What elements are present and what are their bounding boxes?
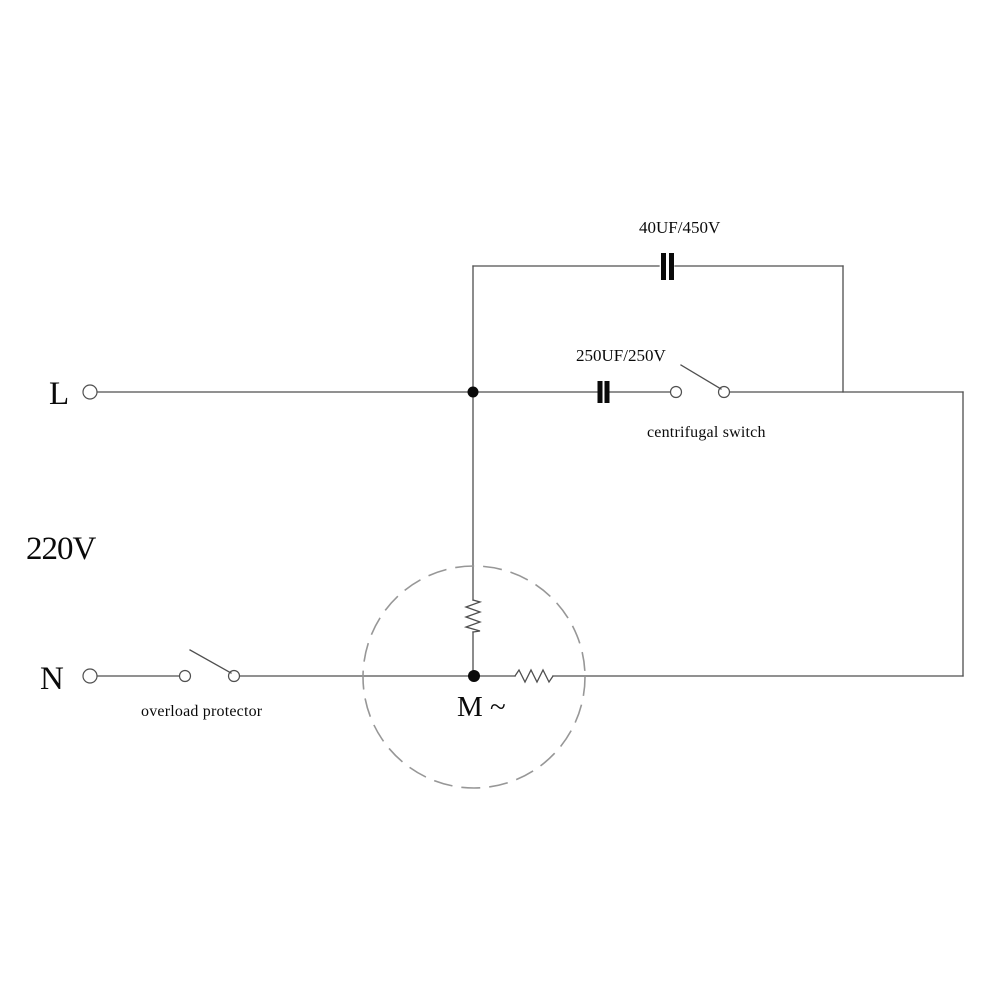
- centrifugal-switch: centrifugal switch: [647, 365, 766, 441]
- capacitor-plate-icon: [669, 253, 674, 280]
- neutral-label: N: [40, 661, 64, 697]
- run-capacitor-label: 40UF/450V: [639, 218, 721, 237]
- overload-protector-label: overload protector: [141, 703, 263, 720]
- switch-blade-icon: [681, 365, 721, 389]
- motor-label: M ~: [457, 691, 506, 723]
- n-terminal-icon: [83, 669, 97, 683]
- motor-wiring-schematic: M ~ 40UF/450V 250UF/250V centrifugal swi…: [0, 0, 998, 998]
- start-capacitor-label: 250UF/250V: [576, 346, 666, 365]
- motor-winding-vertical: [466, 600, 480, 632]
- capacitor-plate-icon: [605, 381, 610, 403]
- switch-blade-icon: [190, 650, 231, 673]
- voltage-label: 220V: [26, 531, 97, 567]
- motor-center-dot: [468, 670, 480, 682]
- motor: M ~: [363, 566, 585, 788]
- wires: [97, 266, 963, 676]
- capacitor-plate-icon: [661, 253, 666, 280]
- run-capacitor: 40UF/450V: [639, 218, 721, 280]
- junction-dot: [468, 387, 479, 398]
- wiring-diagram-canvas: M ~ 40UF/450V 250UF/250V centrifugal swi…: [0, 0, 998, 998]
- l-terminal-icon: [83, 385, 97, 399]
- switch-contact-icon: [180, 671, 191, 682]
- switch-contact-icon: [671, 387, 682, 398]
- motor-winding-horizontal: [515, 670, 553, 682]
- supply-terminals: L 220V N: [26, 376, 97, 697]
- overload-protector: overload protector: [141, 650, 263, 720]
- centrifugal-switch-label: centrifugal switch: [647, 424, 766, 441]
- capacitor-plate-icon: [598, 381, 603, 403]
- line-label: L: [49, 376, 68, 412]
- start-capacitor: 250UF/250V: [576, 346, 666, 403]
